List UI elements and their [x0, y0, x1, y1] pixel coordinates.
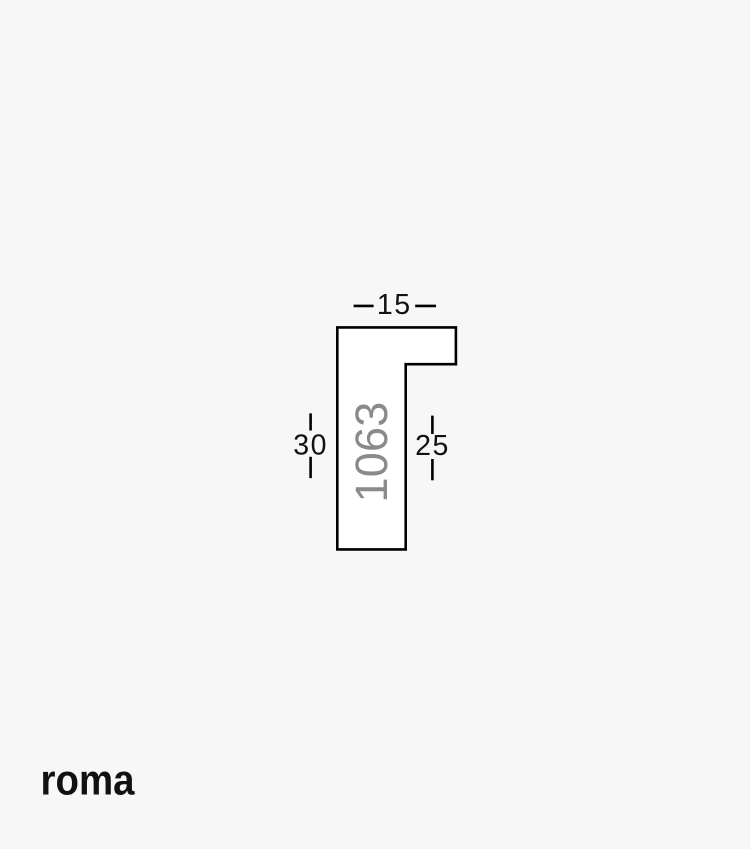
svg-text:1063: 1063 [346, 402, 397, 503]
svg-text:30: 30 [293, 430, 328, 462]
svg-text:15: 15 [377, 289, 412, 321]
svg-text:25: 25 [415, 430, 450, 462]
svg-text:roma: roma [41, 757, 136, 805]
